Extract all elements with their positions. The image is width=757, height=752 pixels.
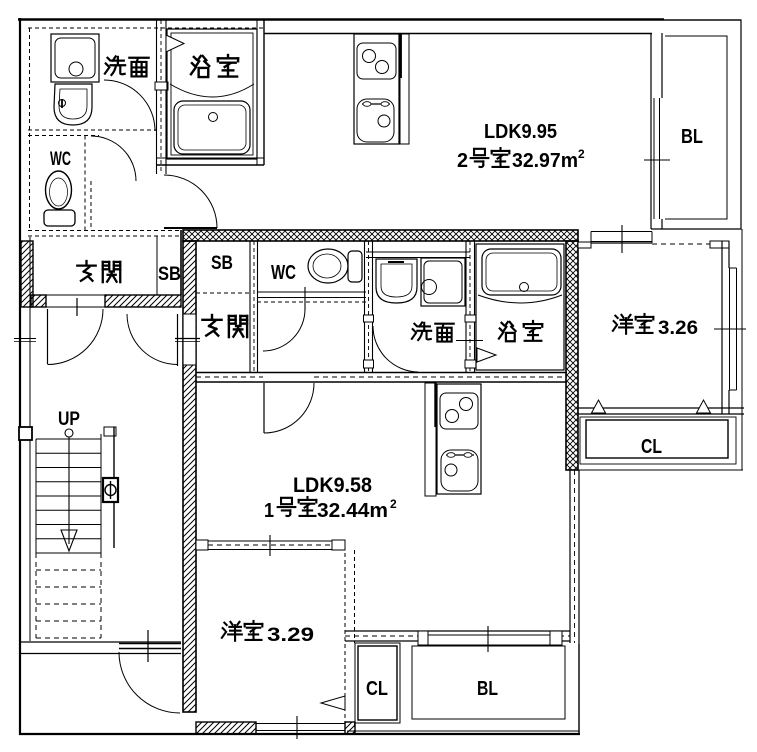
svg-text:WC: WC — [50, 149, 71, 170]
svg-text:2: 2 — [390, 497, 397, 511]
svg-text:32.44m: 32.44m — [317, 500, 388, 522]
svg-text:BL: BL — [681, 126, 703, 148]
svg-text:3.29: 3.29 — [267, 625, 314, 646]
svg-text:BL: BL — [477, 678, 498, 700]
svg-text:UP: UP — [58, 409, 80, 430]
svg-text:2: 2 — [457, 150, 468, 172]
svg-text:SB: SB — [211, 253, 233, 274]
svg-text:WC: WC — [271, 262, 296, 284]
svg-text:32.97m: 32.97m — [512, 150, 578, 172]
svg-text:3.26: 3.26 — [658, 318, 698, 339]
svg-text:CL: CL — [366, 678, 388, 700]
svg-text:1: 1 — [264, 500, 274, 522]
svg-text:2: 2 — [578, 147, 585, 161]
svg-text:SB: SB — [158, 264, 181, 285]
svg-text:LDK9.95: LDK9.95 — [484, 121, 557, 143]
svg-text:LDK9.58: LDK9.58 — [293, 474, 372, 497]
svg-text:CL: CL — [641, 436, 662, 458]
